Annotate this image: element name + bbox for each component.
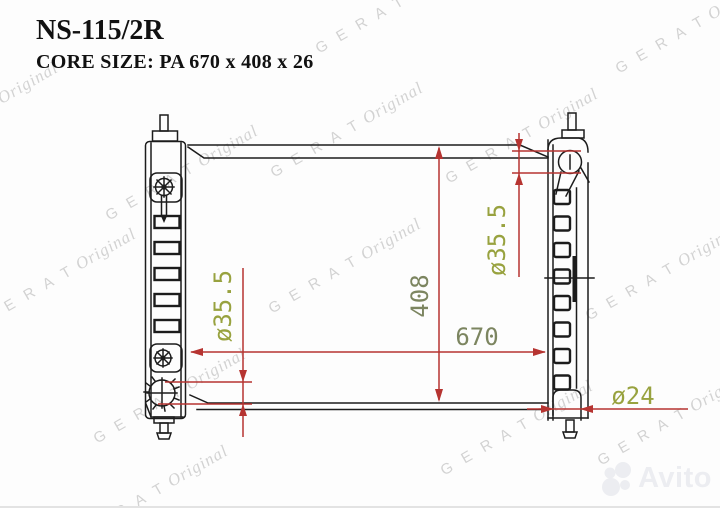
core-size-label: CORE SIZE: PA 670 x 408 x 26 [36, 51, 314, 74]
drawing-header: NS-115/2R CORE SIZE: PA 670 x 408 x 26 [36, 16, 314, 74]
dim-right-pipe-label: ø35.5 [483, 204, 511, 276]
right-top-pin [562, 113, 584, 138]
left-lower-bolt [150, 344, 182, 372]
dim-width-label: 670 [455, 323, 498, 351]
avito-logo: Avito [601, 460, 712, 496]
avito-logo-icon [601, 460, 635, 496]
right-tank-slots [554, 190, 570, 390]
listing-photo: G E R A T OriginalG E R A T OriginalG E … [0, 0, 720, 508]
bottom-outlet-pipe [553, 390, 581, 438]
dimension-height-408: 408 [406, 146, 443, 402]
left-tank [144, 115, 186, 439]
radiator-core [188, 145, 548, 410]
avito-logo-text: Avito [638, 462, 712, 495]
left-top-pin [153, 115, 178, 141]
left-tank-slots [155, 216, 180, 332]
radiator-diagram: 408 670 ø35.5 ø35.5 [0, 0, 720, 508]
dimension-bottom-pipe: ø24 [527, 382, 688, 413]
dim-left-pipe-label: ø35.5 [209, 270, 237, 342]
right-tank [545, 113, 594, 438]
part-number: NS-115/2R [36, 16, 314, 45]
dim-bottom-pipe-label: ø24 [611, 382, 654, 410]
dim-height-label: 408 [406, 274, 434, 317]
